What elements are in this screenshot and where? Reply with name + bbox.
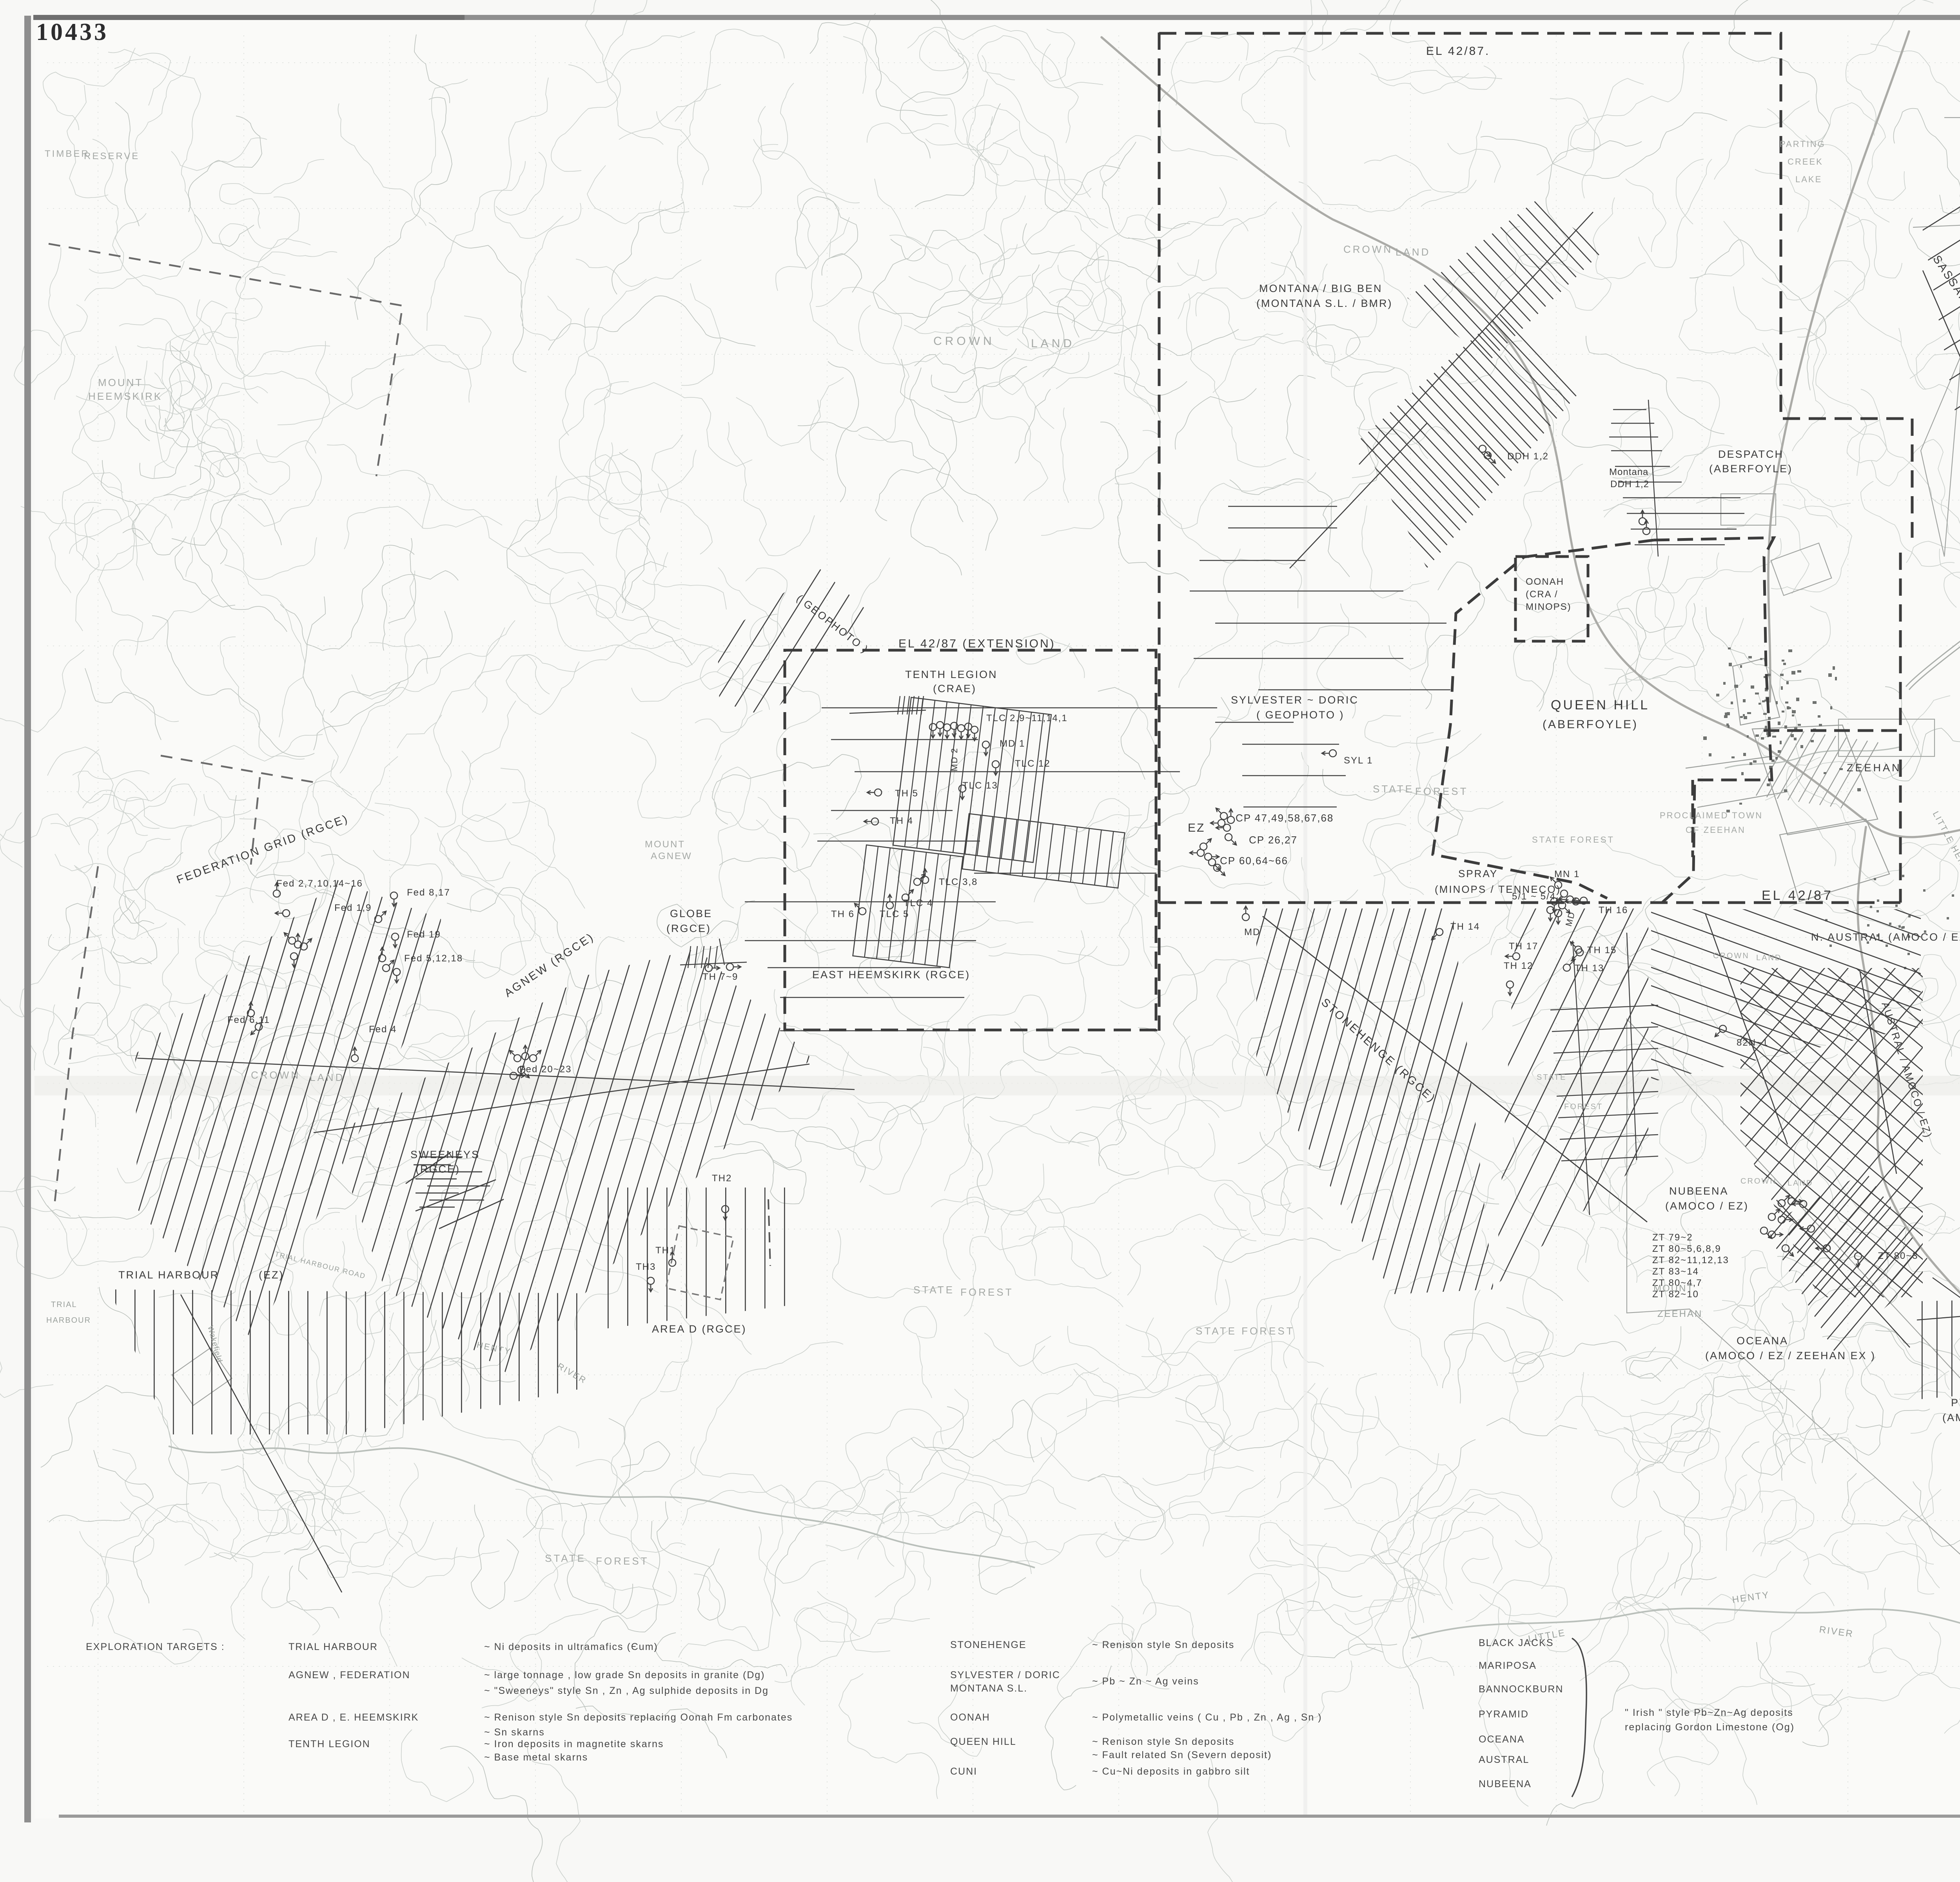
svg-text:AUSTRAL: AUSTRAL bbox=[1479, 1754, 1529, 1765]
svg-text:EXPLORATION TARGETS :: EXPLORATION TARGETS : bbox=[86, 1641, 225, 1652]
svg-text:TENTH LEGION: TENTH LEGION bbox=[905, 669, 998, 680]
svg-text:5/1 ~ 5/4: 5/1 ~ 5/4 bbox=[1512, 891, 1556, 902]
svg-text:TRIAL: TRIAL bbox=[51, 1300, 77, 1309]
svg-text:TLC 2,9~11,14,1: TLC 2,9~11,14,1 bbox=[986, 713, 1068, 723]
svg-text:FOREST: FOREST bbox=[1415, 785, 1468, 797]
svg-text:Fed 20~23: Fed 20~23 bbox=[519, 1064, 572, 1075]
svg-text:(CRA /: (CRA / bbox=[1526, 589, 1558, 600]
svg-text:~ Pb ~ Zn ~ Ag veins: ~ Pb ~ Zn ~ Ag veins bbox=[1092, 1676, 1199, 1687]
svg-text:~ Cu~Ni deposits in gabbro si: ~ Cu~Ni deposits in gabbro silt bbox=[1092, 1766, 1250, 1777]
svg-text:CROWN: CROWN bbox=[251, 1069, 300, 1081]
svg-text:NUBEENA: NUBEENA bbox=[1479, 1779, 1532, 1790]
svg-text:OCEANA: OCEANA bbox=[1479, 1734, 1525, 1745]
svg-text:~ Sn skarns: ~ Sn skarns bbox=[484, 1727, 545, 1738]
svg-text:TRIAL HARBOUR: TRIAL HARBOUR bbox=[118, 1269, 219, 1281]
svg-text:(AMOCO / EZ): (AMOCO / EZ) bbox=[1665, 1200, 1749, 1212]
svg-text:Fed 1,9: Fed 1,9 bbox=[334, 903, 372, 913]
svg-text:OF ZEEHAN: OF ZEEHAN bbox=[1686, 825, 1746, 835]
svg-text:STATE: STATE bbox=[1373, 783, 1414, 795]
svg-text:MONTANA S.L.: MONTANA S.L. bbox=[950, 1683, 1027, 1694]
svg-text:OONAH: OONAH bbox=[950, 1712, 990, 1723]
svg-text:DESPATCH: DESPATCH bbox=[1718, 448, 1784, 460]
svg-text:(MONTANA S.L. / BMR): (MONTANA S.L. / BMR) bbox=[1256, 297, 1393, 309]
svg-text:LAKE: LAKE bbox=[1795, 174, 1822, 184]
svg-text:TH 13: TH 13 bbox=[1575, 963, 1604, 974]
svg-text:(ABERFOYLE): (ABERFOYLE) bbox=[1543, 718, 1638, 731]
svg-text:PROCLAIMED TOWN: PROCLAIMED TOWN bbox=[1660, 810, 1763, 820]
svg-text:DDH 1,2: DDH 1,2 bbox=[1610, 479, 1649, 490]
svg-text:QUEEN HILL: QUEEN HILL bbox=[950, 1736, 1016, 1747]
svg-text:CROWN: CROWN bbox=[1713, 952, 1749, 960]
svg-text:FOREST: FOREST bbox=[960, 1286, 1013, 1298]
svg-text:~ "Sweeneys" style Sn , Zn ,: ~ "Sweeneys" style Sn , Zn , Ag sulphide… bbox=[484, 1685, 769, 1696]
svg-text:LAND: LAND bbox=[1756, 954, 1782, 962]
svg-text:MD 2: MD 2 bbox=[949, 747, 959, 771]
svg-text:CROWN: CROWN bbox=[1343, 243, 1393, 255]
svg-text:HARBOUR: HARBOUR bbox=[46, 1316, 91, 1325]
svg-text:~ Renison style Sn deposits r: ~ Renison style Sn deposits replacing Oo… bbox=[484, 1712, 793, 1723]
svg-text:STATE: STATE bbox=[545, 1552, 586, 1564]
svg-text:MONTANA / BIG BEN: MONTANA / BIG BEN bbox=[1259, 283, 1383, 294]
svg-text:BLACK JACKS: BLACK JACKS bbox=[1479, 1637, 1554, 1648]
svg-text:STONEHENGE: STONEHENGE bbox=[950, 1639, 1027, 1650]
svg-text:TH 16: TH 16 bbox=[1599, 905, 1628, 916]
svg-text:OCEANA: OCEANA bbox=[1737, 1335, 1788, 1347]
svg-text:TH 7~9: TH 7~9 bbox=[702, 972, 738, 982]
svg-text:SYL 1: SYL 1 bbox=[1344, 755, 1373, 766]
svg-text:~ Iron deposits in magnetite: ~ Iron deposits in magnetite skarns bbox=[484, 1739, 664, 1750]
svg-text:FOREST: FOREST bbox=[596, 1555, 649, 1567]
svg-text:(ABERFOYLE): (ABERFOYLE) bbox=[1709, 463, 1793, 475]
svg-text:EL 42/87: EL 42/87 bbox=[1762, 888, 1833, 903]
svg-text:TH 12: TH 12 bbox=[1504, 961, 1533, 971]
svg-text:STATE: STATE bbox=[913, 1284, 955, 1296]
svg-text:SWEENEYS: SWEENEYS bbox=[410, 1149, 480, 1160]
svg-text:AREA D , E. HEEMSKIRK: AREA D , E. HEEMSKIRK bbox=[289, 1712, 419, 1723]
svg-text:~ Polymetallic veins ( Cu , P: ~ Polymetallic veins ( Cu , Pb , Zn , Ag… bbox=[1092, 1712, 1322, 1723]
svg-text:" Irish " style Pb~Zn~Ag depos: " Irish " style Pb~Zn~Ag deposits bbox=[1625, 1707, 1793, 1718]
svg-text:TH3: TH3 bbox=[636, 1262, 656, 1272]
svg-text:BANNOCKBURN: BANNOCKBURN bbox=[1479, 1684, 1563, 1695]
svg-text:TLC 3,8: TLC 3,8 bbox=[939, 877, 978, 887]
svg-text:LAND: LAND bbox=[1031, 337, 1075, 350]
svg-text:ZEEHAN: ZEEHAN bbox=[1847, 762, 1902, 774]
svg-text:TH 17: TH 17 bbox=[1509, 941, 1538, 952]
svg-text:TH 14: TH 14 bbox=[1450, 921, 1480, 932]
svg-text:SPRAY: SPRAY bbox=[1458, 868, 1498, 879]
svg-text:OONAH: OONAH bbox=[1526, 577, 1564, 587]
svg-text:(AMOCO / EZ): (AMOCO / EZ) bbox=[1942, 1412, 1960, 1423]
svg-text:TH2: TH2 bbox=[712, 1173, 732, 1184]
svg-text:CP 47,49,58,67,68: CP 47,49,58,67,68 bbox=[1236, 812, 1334, 824]
svg-text:EAST HEEMSKIRK (RGCE): EAST HEEMSKIRK (RGCE) bbox=[812, 969, 970, 981]
svg-text:LAND: LAND bbox=[1788, 1179, 1813, 1188]
svg-text:CROWN: CROWN bbox=[1740, 1177, 1777, 1186]
svg-text:CROWN: CROWN bbox=[933, 335, 995, 348]
svg-text:TRIAL HARBOUR: TRIAL HARBOUR bbox=[289, 1641, 378, 1652]
svg-text:10433: 10433 bbox=[36, 19, 109, 45]
svg-text:replacing Gordon Limestone (Og: replacing Gordon Limestone (Og) bbox=[1625, 1722, 1795, 1733]
svg-text:TH1: TH1 bbox=[655, 1245, 675, 1256]
svg-text:(RGCE): (RGCE) bbox=[416, 1163, 460, 1175]
svg-text:FOREST: FOREST bbox=[1564, 1102, 1603, 1111]
svg-text:TENTH LEGION: TENTH LEGION bbox=[289, 1739, 370, 1750]
svg-text:PYRAMID: PYRAMID bbox=[1479, 1709, 1529, 1720]
svg-text:CP 60,64~66: CP 60,64~66 bbox=[1220, 855, 1288, 867]
svg-text:( GEOPHOTO ): ( GEOPHOTO ) bbox=[1256, 709, 1345, 721]
svg-text:~ Renison style Sn deposits: ~ Renison style Sn deposits bbox=[1092, 1736, 1234, 1747]
svg-text:STATE FOREST: STATE FOREST bbox=[1196, 1325, 1295, 1337]
svg-text:~ Renison style Sn deposits: ~ Renison style Sn deposits bbox=[1092, 1639, 1234, 1650]
svg-text:~ Fault related Sn (Severn de: ~ Fault related Sn (Severn deposit) bbox=[1092, 1750, 1272, 1761]
svg-text:LAND: LAND bbox=[1396, 246, 1430, 258]
svg-text:ZEEHAN: ZEEHAN bbox=[1657, 1309, 1702, 1319]
svg-text:AGNEW: AGNEW bbox=[651, 851, 692, 861]
svg-text:ZT 83~14: ZT 83~14 bbox=[1652, 1266, 1699, 1277]
svg-text:EL 42/87.: EL 42/87. bbox=[1426, 45, 1490, 58]
svg-text:STATE: STATE bbox=[1537, 1073, 1566, 1082]
svg-text:AGNEW , FEDERATION: AGNEW , FEDERATION bbox=[289, 1670, 410, 1681]
svg-text:TIMBER: TIMBER bbox=[45, 149, 90, 159]
svg-text:GLOBE: GLOBE bbox=[670, 908, 712, 919]
svg-text:TLC 4: TLC 4 bbox=[904, 898, 933, 908]
svg-text:TLC 12: TLC 12 bbox=[1015, 758, 1051, 769]
svg-text:MD: MD bbox=[1244, 927, 1260, 937]
svg-text:N. AUSTRAL (AMOCO / EZ): N. AUSTRAL (AMOCO / EZ) bbox=[1811, 931, 1960, 943]
svg-text:MARIPOSA: MARIPOSA bbox=[1479, 1660, 1537, 1671]
svg-text:SYLVESTER / DORIC: SYLVESTER / DORIC bbox=[950, 1670, 1060, 1681]
svg-text:AREA D (RGCE): AREA D (RGCE) bbox=[652, 1323, 747, 1335]
svg-text:Fed 19: Fed 19 bbox=[407, 929, 441, 940]
svg-text:MOUNT: MOUNT bbox=[98, 377, 143, 388]
svg-text:STATE FOREST: STATE FOREST bbox=[1532, 835, 1615, 845]
svg-text:ZT 82~11,12,13: ZT 82~11,12,13 bbox=[1652, 1255, 1729, 1266]
svg-text:TH 4: TH 4 bbox=[890, 816, 913, 826]
svg-text:LAND: LAND bbox=[310, 1072, 345, 1083]
svg-text:SYLVESTER ~ DORIC: SYLVESTER ~ DORIC bbox=[1231, 694, 1359, 706]
svg-text:(RGCE): (RGCE) bbox=[666, 923, 711, 934]
svg-text:(CRAE): (CRAE) bbox=[933, 683, 976, 694]
svg-text:ZT 79~2: ZT 79~2 bbox=[1652, 1232, 1693, 1243]
svg-text:Fed 8,17: Fed 8,17 bbox=[407, 887, 450, 898]
svg-text:Fed 2,7,10,14~16: Fed 2,7,10,14~16 bbox=[276, 878, 363, 889]
svg-text:PARTING: PARTING bbox=[1780, 139, 1826, 149]
svg-text:CREEK: CREEK bbox=[1788, 157, 1823, 167]
svg-text:Fed 4: Fed 4 bbox=[369, 1024, 397, 1035]
svg-text:~ Base metal skarns: ~ Base metal skarns bbox=[484, 1752, 588, 1763]
svg-text:TH 5: TH 5 bbox=[895, 788, 918, 799]
svg-text:ZT 80~3: ZT 80~3 bbox=[1878, 1251, 1918, 1261]
svg-text:MN 1: MN 1 bbox=[1554, 869, 1580, 879]
svg-text:DDH 1,2: DDH 1,2 bbox=[1507, 451, 1549, 462]
svg-text:TH 15: TH 15 bbox=[1587, 945, 1617, 956]
svg-text:PYRAMID: PYRAMID bbox=[1951, 1397, 1960, 1409]
svg-text:TLC 13: TLC 13 bbox=[962, 780, 998, 791]
svg-text:EL 42/87 (EXTENSION): EL 42/87 (EXTENSION) bbox=[898, 637, 1056, 650]
svg-text:(EZ): (EZ) bbox=[259, 1269, 284, 1281]
svg-text:MOUNT: MOUNT bbox=[1653, 1283, 1694, 1294]
svg-text:Fed 5,12,18: Fed 5,12,18 bbox=[404, 953, 463, 964]
svg-text:Montana: Montana bbox=[1609, 467, 1648, 477]
svg-text:~ Ni deposits in ultramafics: ~ Ni deposits in ultramafics (Єum) bbox=[484, 1641, 658, 1652]
svg-text:(AMOCO / EZ / ZEEHAN EX ): (AMOCO / EZ / ZEEHAN EX ) bbox=[1705, 1350, 1876, 1362]
svg-text:QUEEN HILL: QUEEN HILL bbox=[1551, 698, 1650, 713]
svg-text:CP 26,27: CP 26,27 bbox=[1249, 834, 1298, 846]
svg-text:ZT 80~5,6,8,9: ZT 80~5,6,8,9 bbox=[1652, 1244, 1721, 1254]
svg-text:HEEMSKIRK: HEEMSKIRK bbox=[88, 390, 162, 402]
svg-text:RESERVE: RESERVE bbox=[84, 151, 140, 161]
svg-text:Fed 6,11: Fed 6,11 bbox=[227, 1015, 270, 1025]
svg-text:TH 6: TH 6 bbox=[831, 909, 855, 919]
svg-text:NUBEENA: NUBEENA bbox=[1669, 1185, 1729, 1197]
svg-text:MD 1: MD 1 bbox=[1000, 738, 1025, 749]
svg-text:82N~1: 82N~1 bbox=[1737, 1037, 1768, 1048]
svg-text:EZ: EZ bbox=[1188, 821, 1205, 834]
svg-text:MOUNT: MOUNT bbox=[645, 839, 685, 850]
svg-text:TLC 5: TLC 5 bbox=[880, 909, 909, 919]
svg-text:CUNI: CUNI bbox=[950, 1766, 977, 1777]
svg-text:~ large tonnage , low grade S: ~ large tonnage , low grade Sn deposits … bbox=[484, 1670, 765, 1681]
svg-text:MINOPS): MINOPS) bbox=[1526, 602, 1572, 612]
